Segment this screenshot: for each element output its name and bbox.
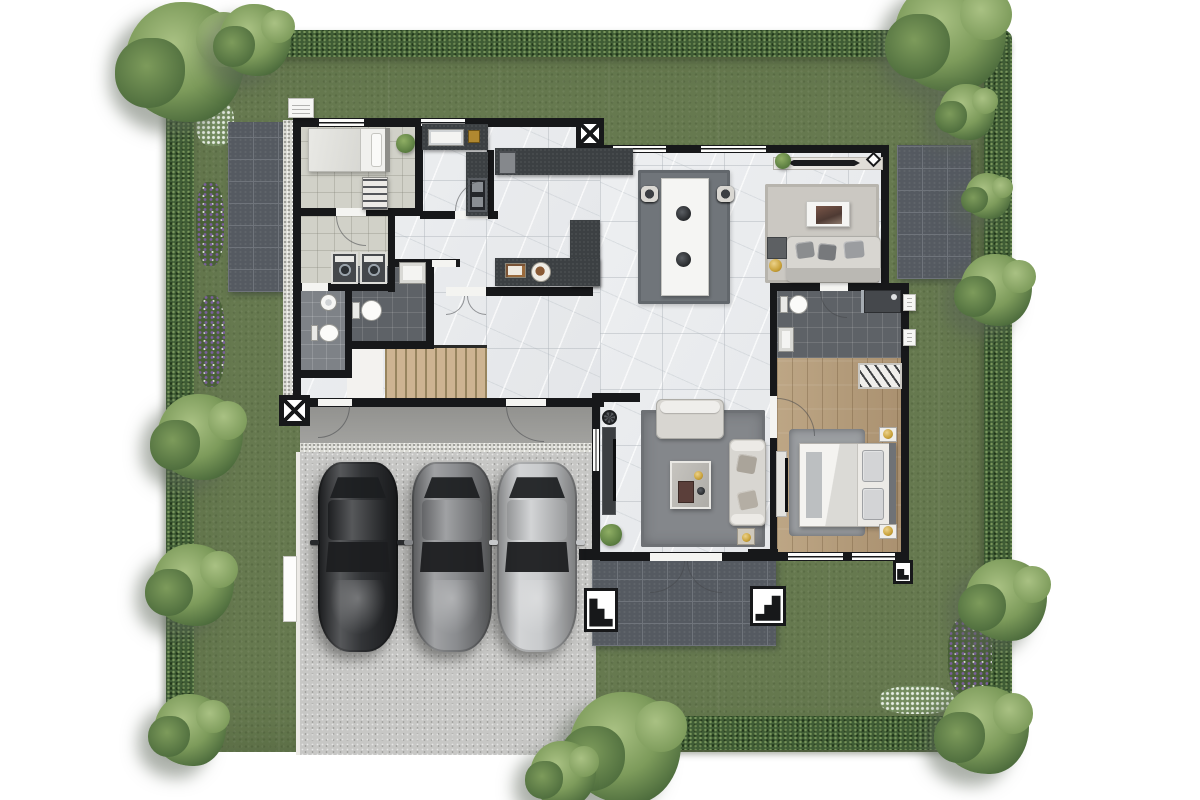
- ac-unit: [903, 294, 916, 311]
- window: [787, 552, 844, 561]
- column-symbol: [576, 119, 604, 148]
- car-windshield: [326, 542, 390, 572]
- fridge: [499, 151, 516, 174]
- door-opening-bathroom1: [302, 283, 328, 291]
- car-hood: [504, 580, 570, 641]
- steps-icon: [584, 588, 618, 632]
- living-side-table: [737, 528, 755, 545]
- wall-west: [293, 118, 301, 407]
- flower-patch-purple: [197, 295, 225, 387]
- sofa-pillow: [736, 489, 758, 511]
- patio-northeast: [897, 145, 971, 279]
- door-opening-porch-2: [506, 399, 546, 406]
- door-opening-hall-double: [446, 287, 486, 296]
- sofa-pillow: [795, 241, 815, 259]
- bed-throw: [806, 452, 822, 518]
- staircase: [385, 345, 487, 398]
- column-symbol: [279, 395, 310, 426]
- car-rear-window: [509, 477, 565, 498]
- car-mirror: [310, 540, 319, 545]
- serving-plate: [531, 262, 551, 282]
- toilet: [352, 300, 382, 321]
- maid-bed-headboard: [385, 128, 390, 172]
- steps-icon: [750, 586, 786, 626]
- pedestal-fan: [602, 410, 617, 425]
- wall-kitchen-south: [486, 287, 593, 296]
- sitting-art-table: [806, 201, 850, 227]
- chaise-arm: [731, 514, 764, 524]
- wall-bathrooms-divider: [345, 288, 352, 378]
- car-roof: [328, 500, 387, 540]
- flower-patch-purple: [196, 182, 224, 266]
- chaise-arm: [731, 441, 764, 451]
- toilet: [311, 324, 340, 342]
- bed-pillow: [862, 488, 884, 520]
- window: [851, 552, 896, 561]
- door-opening-porch-1: [318, 399, 352, 406]
- window: [318, 118, 365, 127]
- toilet-tank: [311, 325, 318, 341]
- wardrobe: [858, 363, 902, 389]
- car-mirror: [489, 540, 498, 545]
- wall-living-west: [592, 393, 600, 560]
- sofa-pillow: [736, 453, 758, 474]
- wall-bedroom-east: [901, 283, 909, 562]
- dining-chair: [717, 186, 734, 202]
- ac-unit: [903, 329, 916, 346]
- wall-vestibule: [388, 214, 395, 292]
- living-sofa: [656, 399, 724, 439]
- toilet-bowl: [319, 324, 339, 342]
- tv-screen: [785, 458, 788, 512]
- toilet-bowl: [789, 295, 808, 314]
- master-bed: [799, 443, 895, 527]
- hedge-top: [192, 30, 1012, 57]
- coffee-table-tray: [678, 481, 694, 503]
- window: [700, 145, 767, 153]
- floor-plan-canvas: [0, 0, 1200, 800]
- window: [592, 428, 600, 472]
- tv-screen: [613, 439, 616, 501]
- main-entry-opening: [650, 553, 722, 561]
- coffee-table: [670, 461, 711, 509]
- dining-chair: [641, 186, 658, 202]
- flower-patch-white: [880, 686, 954, 714]
- patio-west: [228, 122, 290, 292]
- wall-bathroom2-south: [345, 341, 434, 349]
- shower: [864, 290, 901, 313]
- shower-glass: [861, 290, 864, 313]
- car-mirror: [576, 540, 585, 545]
- washbasin: [399, 262, 426, 284]
- washing-machine: [360, 252, 387, 284]
- front-terrace: [592, 558, 776, 646]
- car-hood: [325, 580, 391, 641]
- toilet-bowl: [361, 300, 382, 321]
- tv-console: [602, 427, 616, 515]
- toilet-tank: [352, 302, 360, 319]
- maid-bed: [308, 128, 388, 172]
- bed-pillow: [862, 450, 884, 482]
- car-windshield: [505, 542, 569, 572]
- countertop-burner: [468, 130, 480, 143]
- wall-bathroom1-south: [295, 370, 352, 378]
- table-centerpiece: [676, 252, 691, 267]
- wall-terrace-pier-east: [748, 549, 778, 560]
- door-opening-bathroom2: [432, 260, 456, 267]
- car-mirror: [404, 540, 413, 545]
- gravel-strip-south: [300, 443, 594, 452]
- wall-terrace-pier-west: [579, 549, 593, 560]
- art-print: [816, 206, 842, 224]
- wall-bathroom2-east: [426, 259, 434, 349]
- sitting-side-table: [767, 237, 787, 259]
- car-windshield: [420, 542, 484, 572]
- serving-tray: [505, 263, 526, 278]
- steps-icon: [893, 560, 913, 584]
- wall-thai-kitchen-east: [487, 150, 494, 219]
- car-roof: [507, 500, 566, 540]
- car-dark-charcoal: [318, 462, 398, 652]
- car-gray: [412, 462, 492, 652]
- gold-lamp: [769, 259, 782, 272]
- sitting-sofa: [786, 236, 881, 282]
- toilet-tank: [780, 296, 788, 313]
- flower-patch-purple: [948, 616, 992, 696]
- ac-unit: [288, 98, 314, 118]
- sofa-pillow: [843, 240, 864, 259]
- gold-lamp: [883, 429, 893, 439]
- side-table-decor: [742, 533, 751, 542]
- table-centerpiece: [676, 206, 691, 221]
- toilet-master: [780, 294, 808, 315]
- sofa-pillow: [817, 243, 837, 261]
- sofa-back: [786, 268, 881, 282]
- shower-head: [891, 294, 897, 300]
- gate-post: [283, 556, 297, 622]
- stair-landing: [347, 345, 383, 398]
- hedge-bottom: [618, 716, 1012, 750]
- coffee-table-cup: [697, 487, 705, 495]
- dining-table: [661, 178, 709, 296]
- car-roof: [422, 500, 481, 540]
- bed-headboard: [889, 443, 896, 527]
- washing-machine: [331, 252, 358, 284]
- maid-shelf: [362, 177, 388, 210]
- door-opening-master-bath: [820, 283, 848, 291]
- hedge-left: [166, 34, 194, 752]
- gold-lamp: [883, 526, 893, 536]
- maid-bed-blanket: [309, 129, 361, 171]
- door-opening-bedroom: [770, 396, 777, 438]
- washbasin: [320, 294, 337, 311]
- car-hood: [419, 580, 485, 641]
- car-silver: [497, 462, 577, 652]
- living-chaise-sofa: [729, 439, 766, 526]
- bedroom-tv-cabinet: [776, 451, 787, 517]
- car-rear-window: [424, 477, 480, 498]
- kitchen-double-sink: [428, 129, 464, 146]
- vanity-sink: [778, 327, 794, 352]
- car-rear-window: [330, 477, 386, 498]
- coffee-table-bowl: [694, 471, 703, 480]
- sofa-back-cushion: [660, 401, 720, 413]
- console-decor-spear: [788, 160, 860, 166]
- maid-bed-pillow: [371, 133, 382, 167]
